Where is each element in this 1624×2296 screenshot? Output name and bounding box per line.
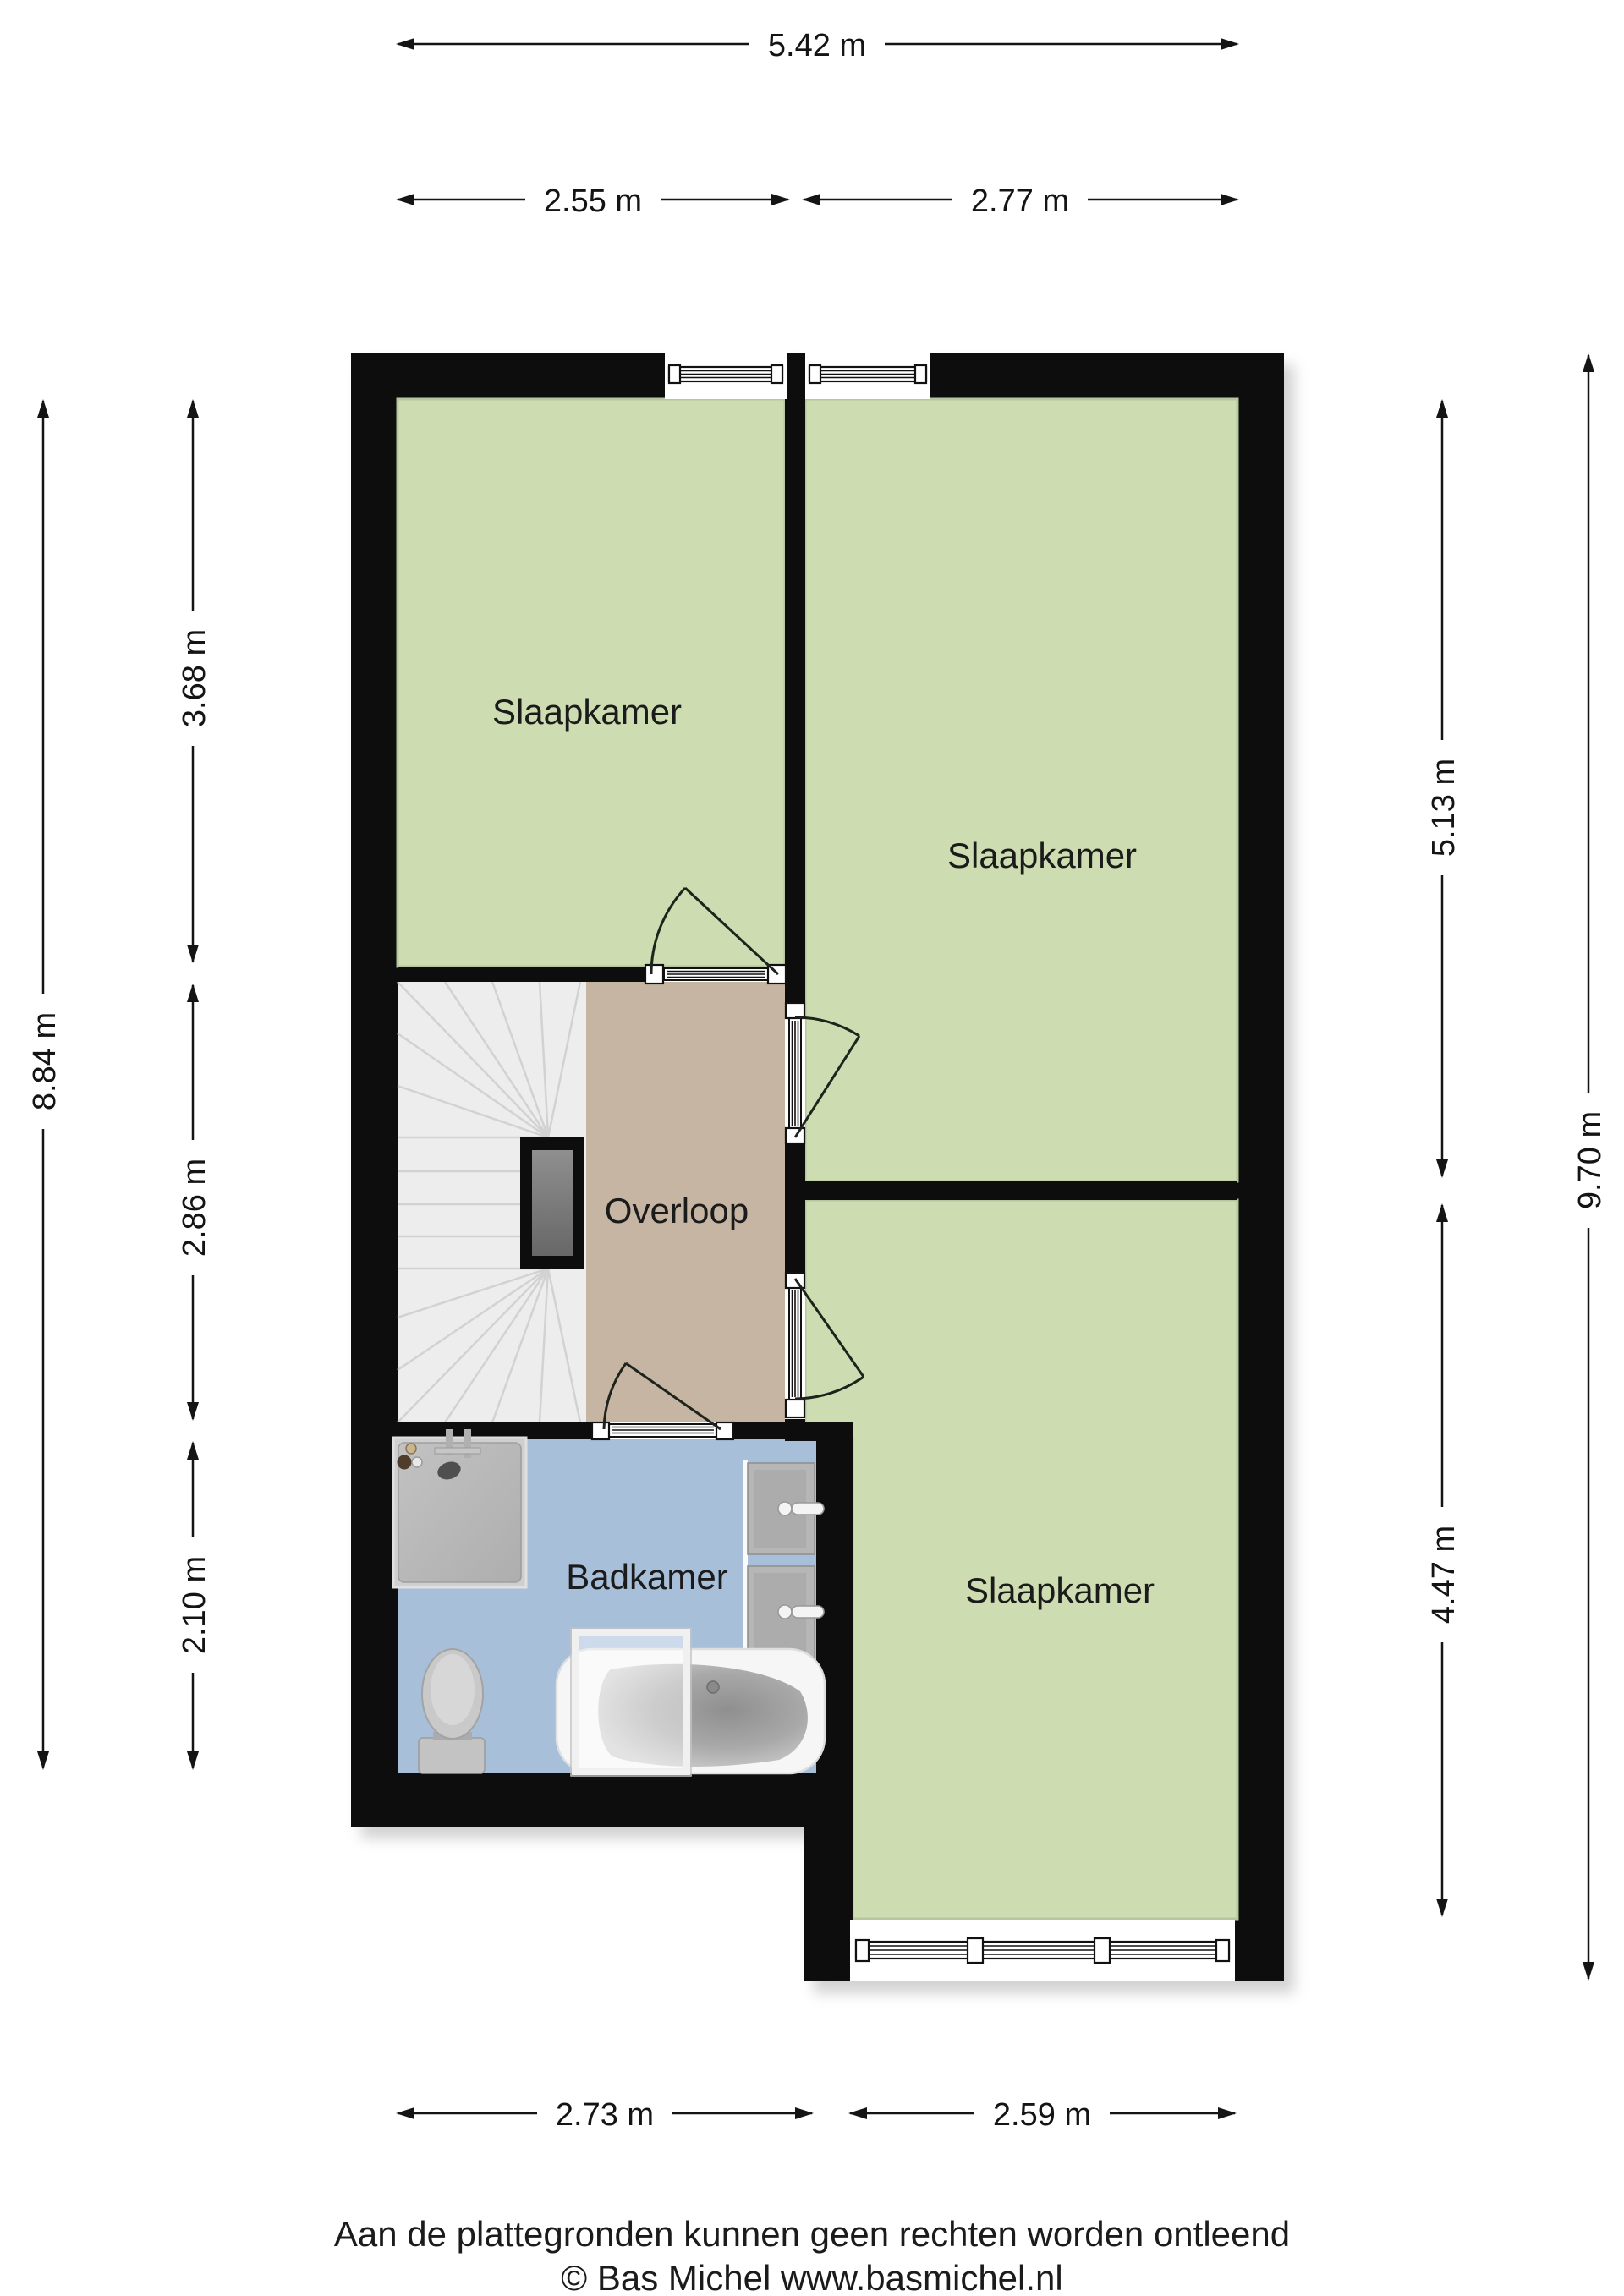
dimension-label: 2.55 m <box>544 184 642 219</box>
window-bottom <box>850 1920 1235 1981</box>
dimension-bottom-right: 2.59 m <box>850 2094 1235 2133</box>
dimension-right-total: 9.70 m <box>1569 355 1608 1979</box>
dimension-label: 8.84 m <box>27 1012 63 1110</box>
footer-copyright: © Bas Michel www.basmichel.nl <box>561 2258 1062 2296</box>
floorplan-canvas: Slaapkamer Slaapkamer Overloop Badkamer … <box>0 0 1624 2296</box>
dimension-label: 5.13 m <box>1426 759 1462 857</box>
dimension-label: 2.77 m <box>971 184 1069 219</box>
footer: Aan de plattegronden kunnen geen rechten… <box>334 2214 1290 2296</box>
room-bedroom-top-left-floor <box>398 399 785 967</box>
dimension-left-total: 8.84 m <box>24 401 63 1768</box>
shower-screen <box>571 1628 691 1776</box>
door-hinge <box>786 1400 804 1417</box>
room-label-bedroom-top-right: Slaapkamer <box>947 836 1137 875</box>
shower-icon <box>393 1429 526 1587</box>
wall-connector <box>785 1422 853 1441</box>
dimension-label: 9.70 m <box>1572 1111 1608 1209</box>
room-label-landing: Overloop <box>605 1191 749 1230</box>
vanity-counter <box>743 1460 748 1661</box>
room-label-bathroom: Badkamer <box>566 1557 727 1597</box>
room-label-bedroom-top-left: Slaapkamer <box>492 692 682 732</box>
footer-disclaimer: Aan de plattegronden kunnen geen rechten… <box>334 2214 1290 2254</box>
dimension-right-bottom: 4.47 m <box>1423 1205 1462 1915</box>
dimension-label: 2.86 m <box>177 1159 212 1257</box>
room-bedroom-bottom-floor <box>805 1200 1237 1919</box>
door-hinge <box>592 1422 609 1439</box>
dimension-label: 2.59 m <box>993 2097 1091 2133</box>
floorplan-page: Slaapkamer Slaapkamer Overloop Badkamer … <box>0 0 1624 2296</box>
dimension-label: 3.68 m <box>177 629 212 727</box>
dimension-top-total: 5.42 m <box>398 25 1237 63</box>
door-hinge <box>786 1003 804 1018</box>
wall-right-horizontal <box>805 1181 1237 1200</box>
dimension-top-right: 2.77 m <box>804 180 1237 219</box>
toilet-icon <box>419 1649 485 1773</box>
dimension-right-top: 5.13 m <box>1423 401 1462 1176</box>
dimension-left-top: 3.68 m <box>173 401 212 962</box>
bathtub-drain <box>707 1681 719 1693</box>
sink-icon-1 <box>748 1463 824 1554</box>
dimension-top-left: 2.55 m <box>398 180 788 219</box>
dimension-label: 2.10 m <box>177 1556 212 1654</box>
dimension-label: 5.42 m <box>768 28 866 63</box>
door-hinge <box>716 1422 733 1439</box>
dimension-left-bottom: 2.10 m <box>173 1443 212 1768</box>
dimension-bottom-left: 2.73 m <box>398 2094 812 2133</box>
dimension-label: 2.73 m <box>556 2097 654 2133</box>
room-bedroom-top-right-floor <box>805 399 1237 1181</box>
room-label-bedroom-bottom: Slaapkamer <box>965 1570 1155 1610</box>
stair-void <box>532 1150 573 1256</box>
dimension-label: 4.47 m <box>1426 1526 1462 1624</box>
window-top-right <box>805 345 930 399</box>
door-hinge <box>645 965 663 984</box>
window-top-left <box>665 345 787 399</box>
sink-icon-2 <box>748 1566 824 1658</box>
dimension-left-middle: 2.86 m <box>173 985 212 1419</box>
